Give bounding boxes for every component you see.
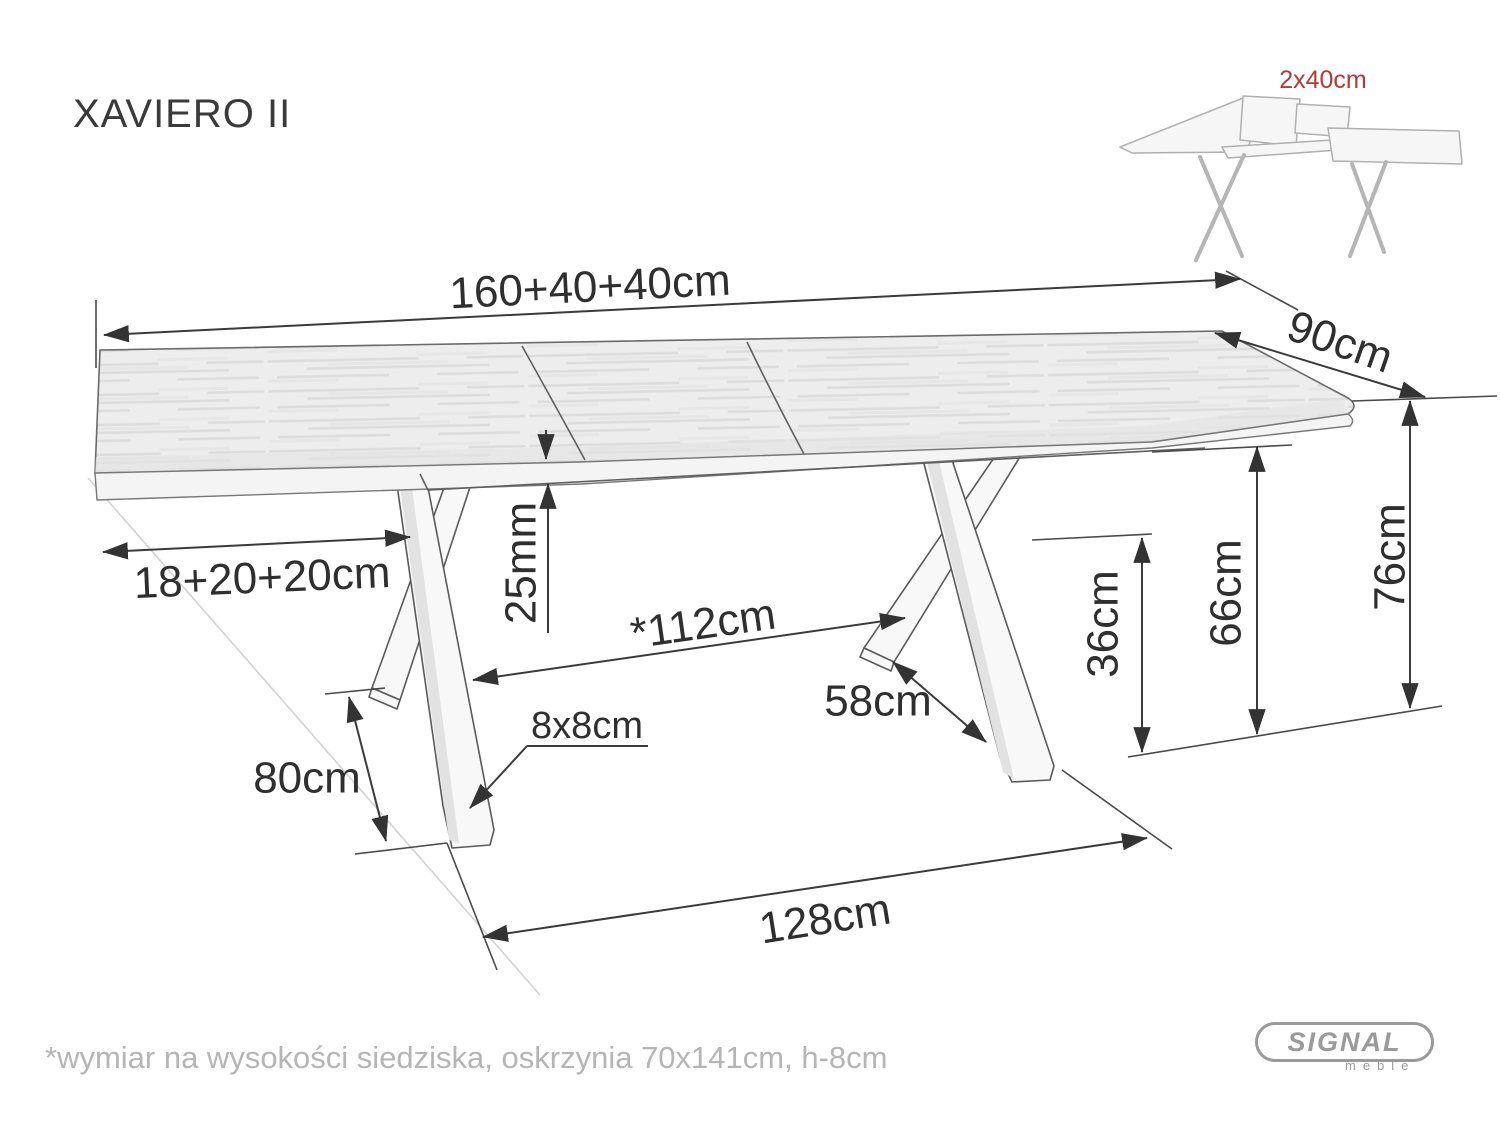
dim-label-foot-spread: 58cm — [824, 677, 932, 726]
dim-label-base-length: 128cm — [756, 884, 894, 953]
table-dimension-drawing: 160+40+40cm 90cm 18+20+20cm 25mm *112cm … — [0, 0, 1500, 1148]
floor-line — [1128, 706, 1442, 757]
extended-table-thumbnail — [1120, 96, 1462, 260]
left-foot-extension-line — [447, 843, 497, 970]
left-x-leg — [369, 469, 494, 848]
dim-label-thickness: 25mm — [497, 502, 546, 624]
length-extension-right — [1226, 271, 1298, 310]
right-x-leg — [860, 447, 1054, 782]
footnote: *wymiar na wysokości siedziska, oskrzyni… — [45, 1040, 887, 1076]
dim-label-overhang: 18+20+20cm — [133, 548, 392, 608]
right-foot-extension-line — [1062, 770, 1172, 849]
thumbnail-left-x-leg — [1196, 155, 1244, 260]
thumbnail-right-top — [1328, 128, 1462, 164]
tabletop — [95, 331, 1354, 500]
dim-label-clearance-height: 66cm — [1202, 539, 1251, 647]
thumbnail-right-x-leg — [1350, 162, 1386, 256]
dim-label-leg-section: 8x8cm — [531, 705, 643, 747]
dim-label-total-length: 160+40+40cm — [448, 256, 731, 319]
signal-logo-text: SIGNAL — [1287, 1027, 1401, 1058]
spec-sheet: XAVIERO II 2x40cm — [0, 0, 1500, 1148]
dim-label-cross-height: 36cm — [1079, 570, 1128, 678]
dim-label-inner-span: *112cm — [627, 590, 778, 659]
signal-logo: SIGNAL — [1255, 1022, 1434, 1062]
thumbnail-leaf-1 — [1240, 96, 1300, 146]
leg-length-extension-bottom — [355, 843, 447, 854]
dim-label-leg-length: 80cm — [253, 754, 361, 803]
dim-label-total-height: 76cm — [1366, 503, 1415, 611]
cross-extension-line — [1032, 534, 1152, 540]
signal-logo-sub: meble — [1345, 1058, 1415, 1073]
